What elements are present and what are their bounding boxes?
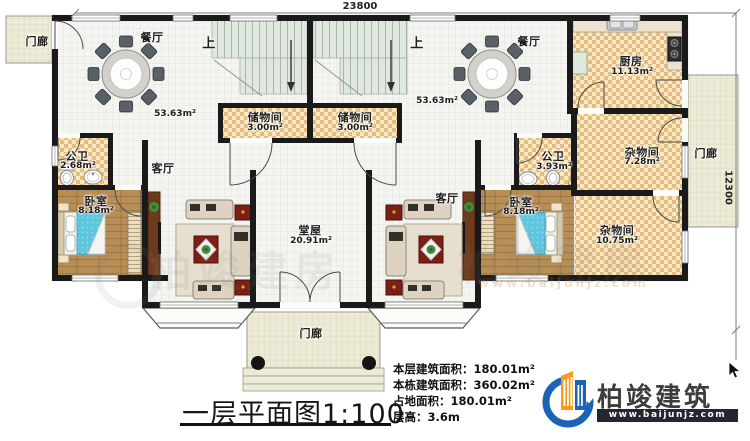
brand-logo-icon [540, 364, 600, 434]
stairs-up-label-left: 上 [202, 33, 216, 52]
mouse-cursor-icon [728, 362, 742, 380]
stat-floor-area: 本层建筑面积：180.01m² [393, 361, 535, 377]
area-label-storage-left: 3.00m² [247, 123, 283, 133]
stat-footprint: 占地面积：180.01m² [393, 393, 535, 409]
area-label-bath-left: 2.68m² [60, 161, 96, 171]
wardrobe-right [481, 212, 494, 254]
room-label-living-right: 客厅 [436, 190, 459, 206]
area-label-bath-right: 3.93m² [536, 162, 572, 172]
stat-floor-height: 层高：3.6m [393, 409, 535, 425]
area-label-utility-large: 10.75m² [596, 236, 638, 246]
sofa-set-left [176, 200, 251, 299]
area-label-kitchen: 11.13m² [611, 67, 653, 77]
room-label-living-left: 客厅 [152, 160, 175, 176]
room-label-dining-right: 餐厅 [518, 33, 541, 49]
area-label-dining-right: 53.63m² [416, 96, 458, 106]
area-label-bedroom-right: 8.18m² [503, 207, 539, 217]
stat-building-area: 本栋建筑面积：360.02m² [393, 377, 535, 393]
area-label-hall: 20.91m² [290, 236, 332, 246]
fridge-icon [571, 52, 587, 74]
area-label-utility-small: 7.28m² [624, 157, 660, 167]
stairs-up-label-right: 上 [410, 33, 424, 52]
brand-url: www.baijunjz.com [597, 409, 738, 422]
room-label-porch-right: 门廊 [695, 145, 718, 161]
porch-column [362, 356, 376, 370]
wardrobe-left [128, 212, 141, 274]
dimension-width: 23800 [335, 1, 385, 12]
area-label-dining-left: 53.63m² [154, 109, 196, 119]
building-stats: 本层建筑面积：180.01m² 本栋建筑面积：360.02m² 占地面积：180… [393, 361, 535, 425]
room-label-dining-left: 餐厅 [141, 29, 164, 45]
area-label-storage-right: 3.00m² [337, 123, 373, 133]
dimension-height: 12300 [723, 168, 734, 208]
tv-cabinet-right [462, 192, 475, 280]
sofa-set-right [386, 200, 462, 299]
porch-column [251, 356, 265, 370]
tv-cabinet-left [148, 192, 161, 280]
floor-plan-canvas: 柏竣建房 柏竣建房 www.baijunjz.com 23800 12300 门… [0, 0, 750, 441]
plan-title-underline [180, 423, 391, 426]
room-label-porch-bottom: 门廊 [300, 325, 323, 341]
room-label-porch-top-left: 门廊 [26, 33, 49, 49]
area-label-bedroom-left: 8.18m² [78, 206, 114, 216]
